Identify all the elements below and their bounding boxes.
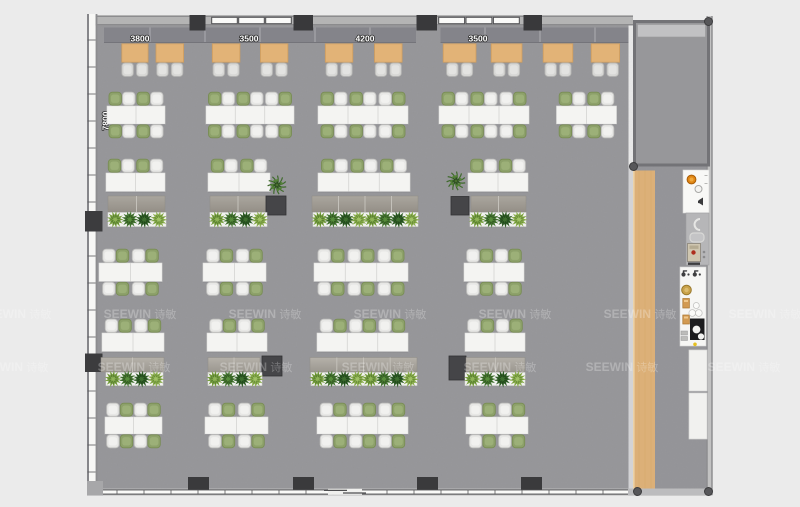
svg-text:SEEWIN 诗敏: SEEWIN 诗敏 <box>479 307 552 321</box>
svg-text:SEEWIN 诗敏: SEEWIN 诗敏 <box>98 360 171 374</box>
svg-text:SEEWIN 诗敏: SEEWIN 诗敏 <box>586 360 659 374</box>
svg-text:SEEWIN 诗敏: SEEWIN 诗敏 <box>342 360 415 374</box>
svg-text:SEEWIN 诗敏: SEEWIN 诗敏 <box>729 307 800 321</box>
svg-text:3500: 3500 <box>240 34 259 44</box>
svg-text:SEEWIN 诗敏: SEEWIN 诗敏 <box>464 360 537 374</box>
svg-text:SEEWIN 诗敏: SEEWIN 诗敏 <box>354 307 427 321</box>
svg-text:3500: 3500 <box>469 34 488 44</box>
svg-text:SEEWIN 诗敏: SEEWIN 诗敏 <box>104 307 177 321</box>
svg-text:SEEWIN 诗敏: SEEWIN 诗敏 <box>604 307 677 321</box>
svg-text:SEEWIN 诗敏: SEEWIN 诗敏 <box>229 307 302 321</box>
svg-text:3800: 3800 <box>131 34 150 44</box>
svg-text:4200: 4200 <box>356 34 375 44</box>
svg-text:SEEWIN 诗敏: SEEWIN 诗敏 <box>0 360 48 374</box>
svg-text:SEEWIN 诗敏: SEEWIN 诗敏 <box>0 307 51 321</box>
svg-text:SEEWIN 诗敏: SEEWIN 诗敏 <box>708 360 781 374</box>
svg-text:SEEWIN 诗敏: SEEWIN 诗敏 <box>220 360 293 374</box>
